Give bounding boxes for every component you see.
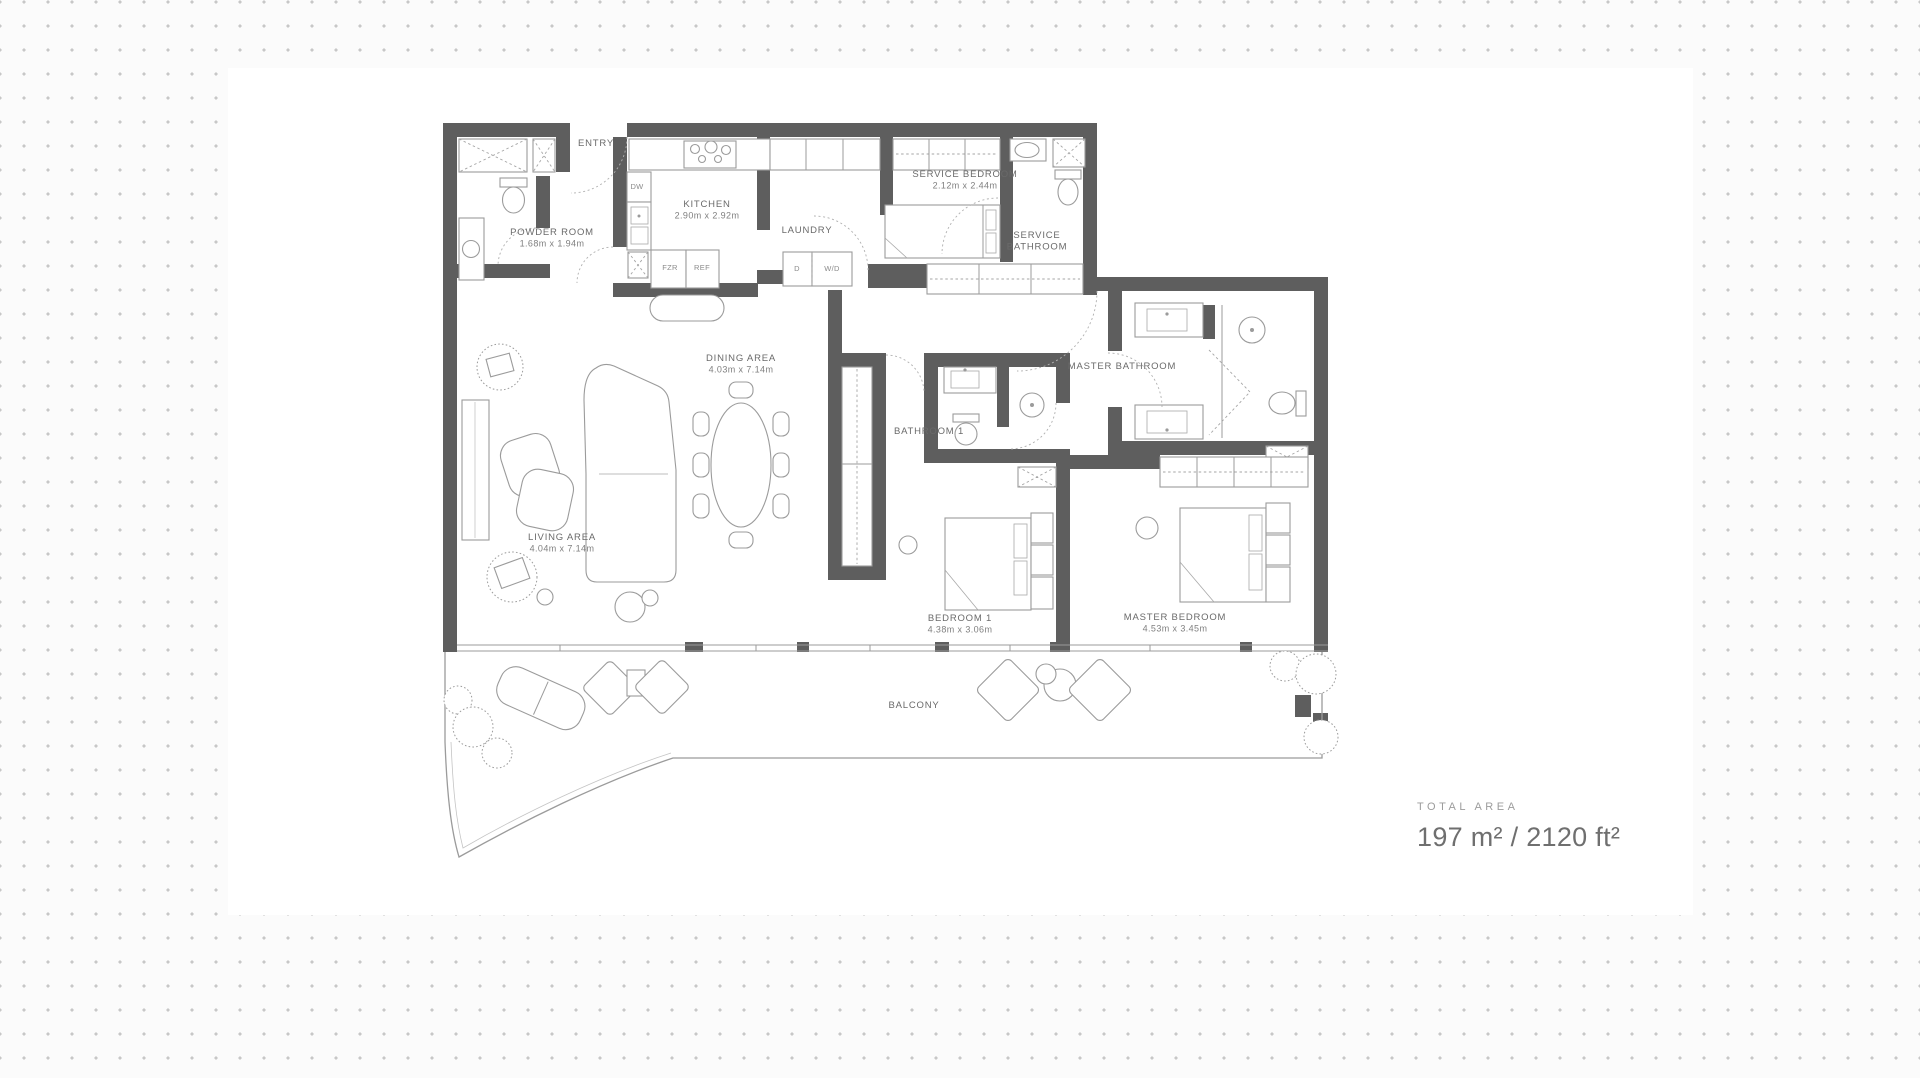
bedroom1-bed xyxy=(945,518,1031,610)
room-label-dining-area: DINING AREA xyxy=(706,353,776,364)
room-dims-master-bedroom: 4.53m x 3.45m xyxy=(1143,624,1208,634)
plant xyxy=(1270,651,1300,681)
floor-plan: ENTRYPOWDER ROOM1.68m x 1.94mKITCHEN2.90… xyxy=(0,0,1920,1078)
room-label-kitchen: KITCHEN xyxy=(683,199,730,210)
master-bed xyxy=(1180,508,1266,602)
media-console xyxy=(462,400,489,540)
room-dims-bedroom-1: 4.38m x 3.06m xyxy=(928,625,993,635)
plant xyxy=(482,738,512,768)
room-dims-service-bedroom: 2.12m x 2.44m xyxy=(933,181,998,191)
master-vanity-2 xyxy=(1135,405,1203,439)
bath1-toilet-tank xyxy=(953,414,979,422)
plant xyxy=(1304,720,1338,754)
room-label-powder-room: POWDER ROOM xyxy=(510,227,594,238)
appliance-label-dishwasher: DW xyxy=(630,182,644,191)
plant xyxy=(453,707,493,747)
room-label-service-bedroom: SERVICE BEDROOM xyxy=(912,169,1017,180)
master-vanity-1 xyxy=(1135,303,1203,337)
room-dims-living-area: 4.04m x 7.14m xyxy=(530,544,595,554)
master-toilet-tank xyxy=(1296,391,1306,416)
room-label-master-bedroom: MASTER BEDROOM xyxy=(1124,612,1227,623)
balcony-chair xyxy=(975,657,1040,722)
sideboard xyxy=(650,295,724,321)
balcony-chair xyxy=(1067,657,1132,722)
room-dims-powder-room: 1.68m x 1.94m xyxy=(520,239,585,249)
total-area-block: TOTAL AREA 197 m² / 2120 ft² xyxy=(1417,801,1620,853)
service-bath-sink xyxy=(1015,143,1039,158)
appliance-label-refrigerator: REF xyxy=(694,263,710,272)
total-area-label: TOTAL AREA xyxy=(1417,801,1620,813)
dining-table xyxy=(711,403,771,527)
room-label-balcony: BALCONY xyxy=(888,700,939,711)
powder-toilet-tank xyxy=(500,178,527,187)
room-label-entry: ENTRY xyxy=(578,138,614,149)
appliance-label-freezer: FZR xyxy=(662,263,678,272)
room-dims-kitchen: 2.90m x 2.92m xyxy=(675,211,740,221)
room-label-service-bathroom: BATHROOM xyxy=(1007,242,1068,253)
room-label-bathroom-1: BATHROOM 1 xyxy=(894,426,964,437)
room-label-bedroom-1: BEDROOM 1 xyxy=(928,613,992,624)
kitchen-sink-unit xyxy=(627,202,651,250)
room-label-laundry: LAUNDRY xyxy=(782,225,833,236)
balcony-chair xyxy=(634,659,691,716)
page: ENTRYPOWDER ROOM1.68m x 1.94mKITCHEN2.90… xyxy=(0,0,1920,1078)
sofa xyxy=(584,364,676,582)
coffee-table xyxy=(615,592,645,622)
plant xyxy=(1296,654,1336,694)
master-toilet xyxy=(1269,392,1295,414)
powder-sink xyxy=(463,241,480,258)
room-dims-dining-area: 4.03m x 7.14m xyxy=(709,365,774,375)
powder-toilet xyxy=(503,187,525,213)
appliance-label-washer-dryer: W/D xyxy=(824,264,840,273)
service-toilet-tank xyxy=(1055,170,1081,179)
appliance-label-dryer: D xyxy=(794,264,800,273)
balcony-outline xyxy=(445,645,1328,857)
room-label-service-bathroom: SERVICE xyxy=(1013,230,1060,241)
service-toilet xyxy=(1058,179,1078,205)
room-label-master-bathroom: MASTER BATHROOM xyxy=(1068,361,1176,372)
master-side-table xyxy=(1136,517,1158,539)
room-label-living-area: LIVING AREA xyxy=(528,532,596,543)
total-area-value: 197 m² / 2120 ft² xyxy=(1417,822,1620,853)
